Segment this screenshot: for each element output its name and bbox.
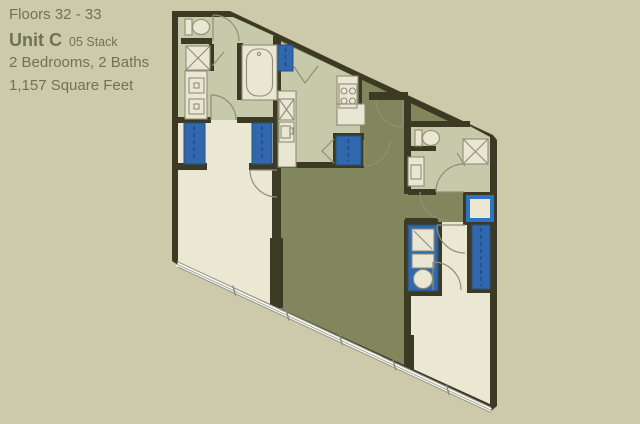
floor-plan-svg — [0, 0, 640, 419]
toilet2-icon — [415, 130, 422, 146]
bathtub-icon — [242, 45, 277, 100]
toilet-icon — [185, 19, 192, 35]
pass-through-counter — [337, 104, 365, 125]
floor-plan — [0, 0, 640, 419]
vanity2-icon — [408, 157, 424, 186]
